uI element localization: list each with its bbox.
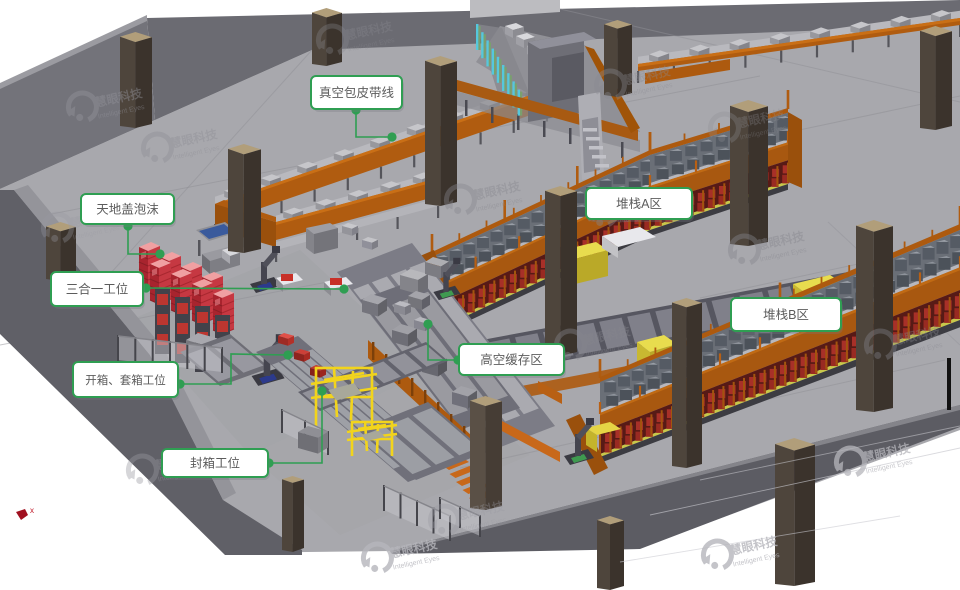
svg-text:三合一工位: 三合一工位: [66, 282, 129, 297]
svg-text:高空缓存区: 高空缓存区: [480, 352, 543, 367]
svg-text:堆栈A区: 堆栈A区: [616, 196, 662, 211]
svg-text:封箱工位: 封箱工位: [190, 456, 240, 471]
svg-text:x: x: [30, 506, 34, 515]
svg-text:真空包皮带线: 真空包皮带线: [319, 86, 395, 100]
svg-text:堆栈B区: 堆栈B区: [763, 307, 809, 322]
svg-text:开箱、套箱工位: 开箱、套箱工位: [85, 373, 166, 387]
svg-text:天地盖泡沫: 天地盖泡沫: [96, 203, 159, 217]
